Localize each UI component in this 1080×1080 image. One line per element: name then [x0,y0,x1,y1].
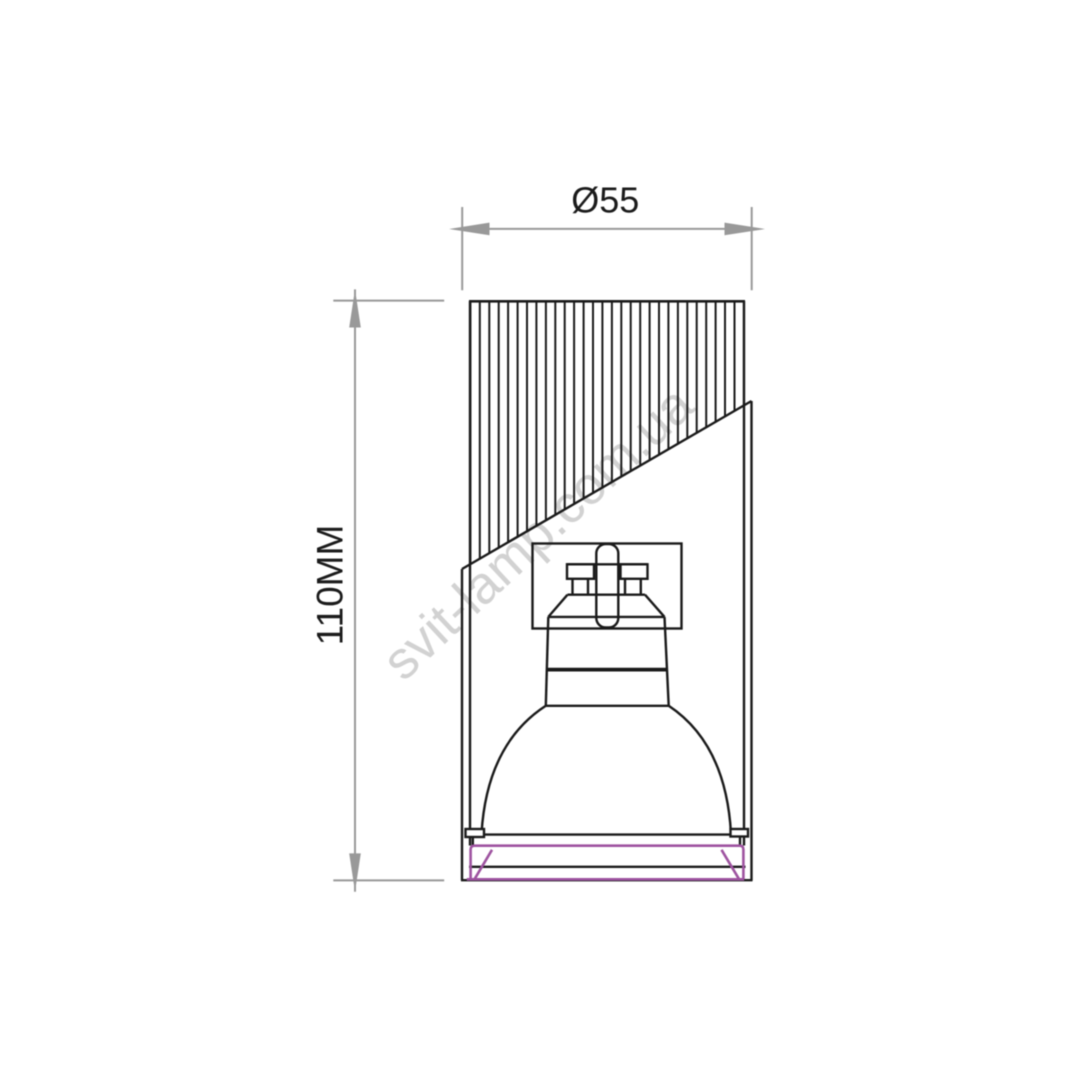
svg-text:Ø55: Ø55 [571,180,639,221]
svg-text:110MM: 110MM [310,525,351,646]
